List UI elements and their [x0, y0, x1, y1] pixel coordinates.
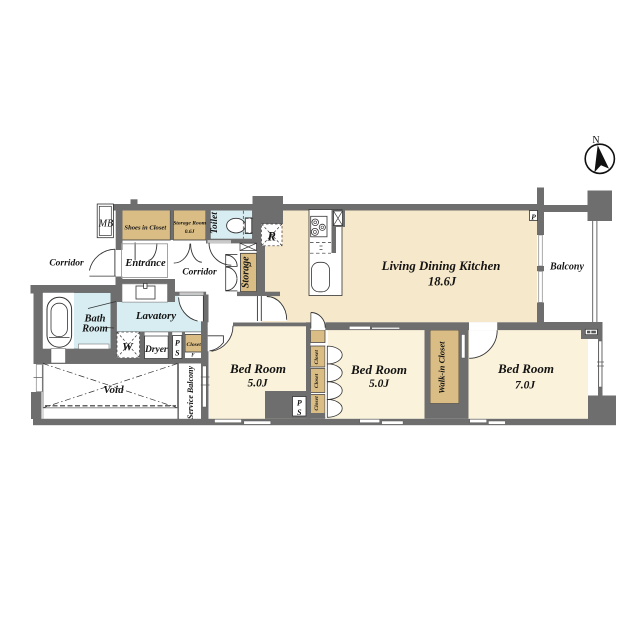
svg-text:Entrance: Entrance — [124, 258, 166, 269]
svg-text:MB: MB — [98, 219, 113, 230]
svg-text:Closet: Closet — [187, 342, 202, 348]
svg-text:Dryer: Dryer — [144, 345, 168, 355]
svg-text:Corridor: Corridor — [49, 258, 84, 268]
svg-text:P: P — [297, 399, 302, 408]
svg-text:5.0J: 5.0J — [247, 378, 268, 390]
svg-text:Toilet: Toilet — [210, 212, 220, 234]
svg-text:N: N — [592, 135, 599, 146]
svg-text:P: P — [175, 339, 180, 348]
svg-text:Service Balcony: Service Balcony — [186, 366, 195, 420]
svg-text:Closet: Closet — [314, 350, 320, 365]
svg-text:Storage: Storage — [240, 256, 251, 288]
svg-text:Bed Room: Bed Room — [497, 361, 554, 376]
svg-text:0.6J: 0.6J — [185, 229, 195, 235]
svg-text:Closet: Closet — [314, 373, 320, 388]
svg-text:5.0J: 5.0J — [369, 378, 390, 390]
svg-text:Balcony: Balcony — [549, 262, 584, 273]
svg-text:S: S — [175, 348, 180, 357]
svg-text:Storage Room: Storage Room — [173, 221, 206, 227]
svg-text:Bed Room: Bed Room — [350, 362, 407, 377]
svg-text:Corridor: Corridor — [182, 267, 217, 277]
svg-text:Lavatory: Lavatory — [135, 310, 176, 322]
svg-text:18.6J: 18.6J — [428, 275, 457, 289]
svg-text:R: R — [267, 230, 276, 244]
svg-text:Bed Room: Bed Room — [229, 361, 286, 376]
svg-text:W: W — [122, 340, 134, 354]
svg-text:Walk-in Closet: Walk-in Closet — [437, 341, 447, 394]
svg-text:S: S — [297, 408, 302, 417]
svg-text:Void: Void — [103, 384, 124, 396]
svg-text:P: P — [531, 213, 536, 222]
svg-text:Room: Room — [81, 324, 108, 335]
svg-text:Closet: Closet — [314, 396, 320, 411]
svg-text:Living Dining Kitchen: Living Dining Kitchen — [381, 259, 501, 273]
svg-text:Shoes in Closet: Shoes in Closet — [124, 224, 166, 231]
svg-text:7.0J: 7.0J — [515, 379, 536, 391]
